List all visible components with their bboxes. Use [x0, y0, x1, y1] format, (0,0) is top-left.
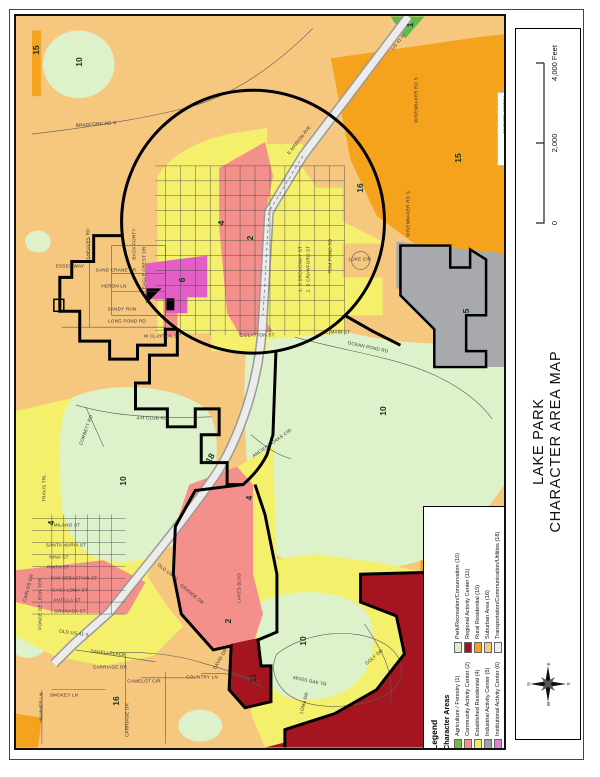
legend-label: Park/Recreation/Conservation (10): [455, 553, 461, 639]
legend-subtitle: Character Areas: [442, 514, 451, 750]
street-name-label: MILANO ST: [54, 523, 81, 528]
street-name-label: ANCIENT OAKS CIR: [252, 428, 293, 459]
scale-bar: 0 2,000 4,000 Feet: [530, 42, 566, 242]
street-name-label: WISENBAKER RD S: [406, 191, 411, 237]
legend-title: Legend: [429, 514, 439, 750]
legend-label: Industrial Activity Center (5): [485, 668, 491, 736]
region-number-label: 4: [244, 496, 254, 501]
street-name-label: TOM POND RD: [328, 239, 333, 274]
legend-box: Legend Character Areas Agriculture / For…: [423, 506, 506, 750]
street-name-label: 2. S CRAWFORD ST: [306, 246, 311, 293]
scale-tick-4000: 4,000 Feet: [550, 45, 559, 82]
region-number-label: 6: [177, 278, 187, 283]
street-name-label: CORBETT RD: [78, 414, 94, 446]
region-number-label: 15: [31, 45, 41, 54]
legend-label: Suburban Area (16): [485, 590, 491, 639]
legend-item: Industrial Activity Center (5): [483, 662, 493, 750]
region-number-label: 10: [298, 636, 308, 645]
legend-label: Community Activity Center (2): [465, 662, 471, 736]
street-name-label: PONCE DE LEON TER: [38, 578, 43, 630]
map-title-line1: LAKE PARK: [531, 254, 548, 629]
street-name-label: SMOKEY LN: [50, 693, 79, 698]
legend-swatch: [474, 739, 482, 750]
legend-item: Suburban Area (16): [483, 532, 493, 653]
region-number-label: 16: [111, 696, 121, 705]
legend-swatch: [474, 642, 482, 653]
legend-item: Rural Residential (15): [473, 532, 483, 653]
street-name-label: LAKES BLVD: [237, 573, 242, 603]
logo-letter: g: [502, 148, 507, 156]
street-name-label: SHEAVES RD: [86, 228, 91, 259]
logo-letter: s: [502, 156, 507, 163]
legend-item: Institutional Activity Center (6): [493, 662, 503, 750]
street-name-label: GOLF DR: [364, 648, 384, 666]
street-name-label: LONG POND RD: [108, 319, 146, 324]
street-name-label: DAVID DR: [212, 648, 228, 671]
legend-item: Community Activity Center (2): [463, 662, 473, 750]
legend-column-2: Park/Recreation/Conservation (10)Regiona…: [453, 532, 503, 653]
scale-tick-2000: 2,000: [550, 134, 559, 153]
region-number-label: 10: [378, 406, 388, 415]
street-name-label: LUKE CIR: [349, 257, 372, 262]
compass-s: S: [566, 682, 570, 685]
street-name-label: GRANADA ST: [54, 609, 86, 614]
legend-label: Established Residential (4): [475, 669, 481, 736]
region-number-label: 16: [355, 183, 365, 192]
street-name-label: E MAIN ST: [326, 330, 351, 335]
street-name-label: TRAVIS TRL: [42, 474, 47, 502]
legend-label: Rural Residential (15): [475, 585, 481, 639]
legend-column-1: Agriculture / Forestry (1)Community Acti…: [453, 662, 503, 750]
sgrc-logo-letters: sgrc: [503, 136, 507, 163]
street-name-label: ANTILLA ST: [53, 598, 81, 603]
compass-e: E: [546, 662, 551, 665]
street-name-label: NINA ST: [49, 555, 68, 560]
legend-swatch: [484, 642, 492, 653]
title-panel: N E S W LAKE PARK CHARACTER AREA MAP 0 2…: [515, 28, 581, 740]
map-sheet: 1510116154265101041842161011BRADFORD RD …: [0, 0, 600, 777]
compass-box: N E S W: [526, 629, 570, 739]
region-number-label: 2: [223, 619, 233, 624]
legend-label: Institutional Activity Center (6): [495, 662, 501, 736]
map-canvas: 1510116154265101041842161011BRADFORD RD …: [14, 14, 506, 750]
street-name-label: PINTA ST: [47, 565, 69, 570]
legend-swatch: [454, 642, 462, 653]
region-number-label: 2: [245, 236, 255, 241]
street-name-label: OLD US 41: [156, 562, 179, 582]
street-name-label: US 41 N: [390, 33, 405, 51]
sgrc-logo: sgrc SOUTHERN GEORGIA REGIONAL COMMISSIO…: [497, 92, 506, 166]
logo-letter: r: [502, 143, 507, 148]
street-name-label: E CLAYTON ST: [239, 333, 274, 338]
compass-w: W: [546, 701, 551, 706]
map-title-line2: CHARACTER AREA MAP: [548, 254, 565, 629]
region-number-label: 10: [118, 476, 128, 485]
scale-bar-box: 0 2,000 4,000 Feet: [530, 29, 566, 254]
street-name-label: GRANDE DR: [179, 583, 205, 606]
legend-label: Regional Activity Center (11): [465, 569, 471, 639]
street-name-label: BACK FORTY: [132, 228, 137, 259]
scale-tick-0: 0: [550, 221, 559, 225]
street-name-label: SANDY RUN: [108, 307, 137, 312]
legend-label: Agriculture / Forestry (1): [455, 676, 461, 736]
legend-item: Agriculture / Forestry (1): [453, 662, 463, 750]
street-name-label: BRADFORD RD S: [76, 120, 117, 128]
legend-swatch: [494, 642, 502, 653]
map-title: LAKE PARK CHARACTER AREA MAP: [531, 254, 565, 629]
street-name-label: DANELI PLACE: [90, 649, 126, 658]
region-number-label: 15: [453, 153, 463, 162]
north-arrow-icon: N E S W: [526, 662, 570, 706]
legend-item: Established Residential (4): [473, 662, 483, 750]
street-name-label: CARRIAGE DR: [93, 665, 127, 670]
region-number-label: 5: [461, 309, 471, 314]
street-name-label: COUNTRY LN: [186, 675, 218, 680]
street-name-label: HAMMER LN: [39, 692, 44, 721]
region-number-label: 10: [74, 57, 84, 66]
street-name-label: SAND CRANE DR: [96, 268, 137, 273]
logo-line1: SOUTHERN GEORGIA: [503, 95, 506, 134]
legend-swatch: [454, 739, 462, 750]
legend-swatch: [484, 739, 492, 750]
legend-swatch: [464, 642, 472, 653]
region-number-label: 11: [248, 674, 258, 683]
legend-item: Regional Activity Center (11): [463, 532, 473, 653]
street-name-label: WISENBAKER RD S: [414, 77, 419, 123]
legend-label: Transportation/Communication/Utilities (…: [495, 532, 501, 639]
legend-item: Park/Recreation/Conservation (10): [453, 532, 463, 653]
street-name-label: ESSEX WAY: [56, 264, 84, 269]
street-name-label: CARRIAGE DR: [125, 703, 130, 737]
legend-swatch: [464, 739, 472, 750]
street-name-label: CAMELOT CIR: [127, 679, 161, 684]
region-number-label: 18: [203, 451, 216, 464]
legend-swatch: [494, 739, 502, 750]
street-name-label: E MARION AVE: [286, 125, 311, 156]
street-name-label: 4-H CLUB RD: [136, 416, 167, 421]
street-name-label: SANTA MARIA ST: [46, 543, 86, 548]
street-name-label: W CLAYTON ST: [144, 334, 180, 339]
street-name-label: CASA LOMA ST: [52, 588, 88, 593]
logo-letter: c: [502, 136, 507, 143]
street-name-label: HERON LN: [101, 284, 126, 289]
region-number-label: 4: [216, 221, 226, 226]
street-name-label: LOMA DR: [299, 692, 310, 715]
street-name-label: CARLOS DR: [22, 574, 34, 603]
compass-n: N: [526, 682, 531, 685]
street-name-label: EAGLE CREST DR: [142, 247, 147, 290]
region-number-label: 1: [405, 23, 415, 28]
street-name-label: OLD US 41 S: [59, 628, 89, 637]
street-name-label: 1. S BROADWAY ST: [298, 246, 303, 292]
street-name-label: MOSS OAK TR: [293, 675, 327, 687]
street-name-label: OCEAN POND RD: [347, 340, 389, 353]
legend-item: Transportation/Communication/Utilities (…: [493, 532, 503, 653]
legend-columns: Agriculture / Forestry (1)Community Acti…: [453, 514, 503, 750]
street-name-label: SAN SEBASTIAN ST: [51, 576, 98, 581]
